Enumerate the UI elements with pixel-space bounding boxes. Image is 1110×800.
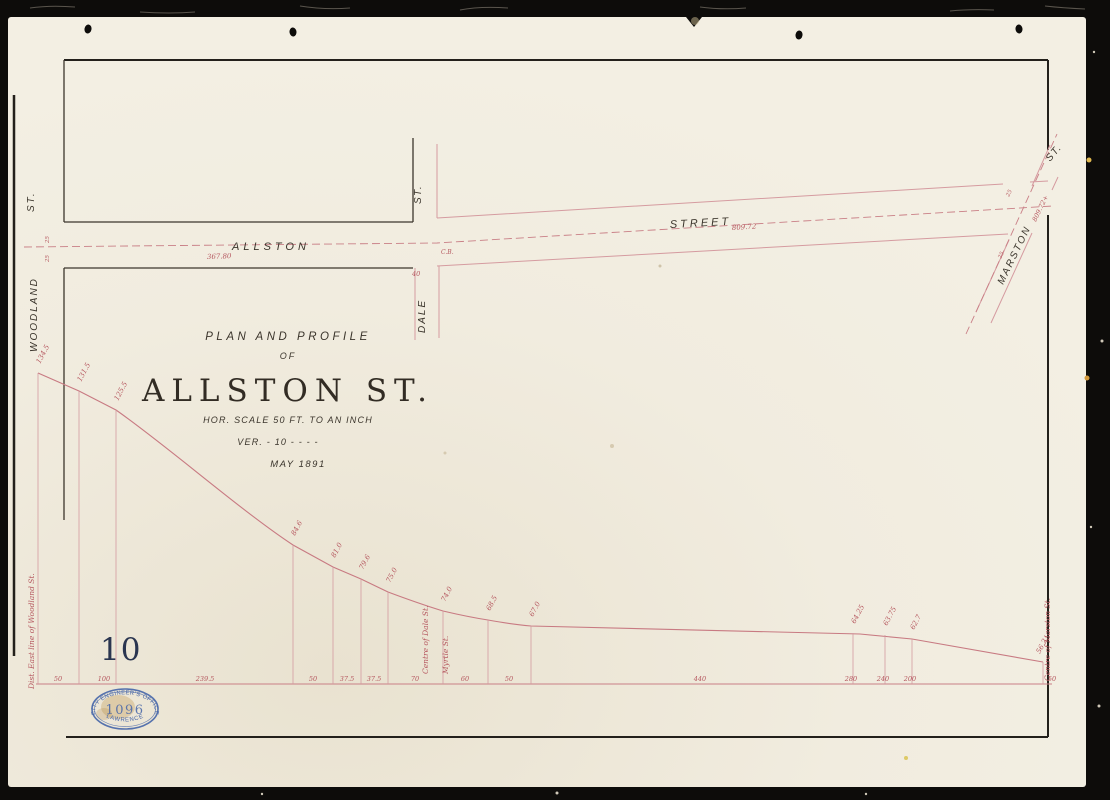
plan-profile-drawing: ST. WOODLAND ALLSTON STREET ST. DALE MAR…: [0, 0, 1110, 800]
distance-label: 50: [54, 675, 62, 683]
woodland-halfwidth-2: 25: [45, 255, 51, 263]
distance-label: 37.5: [340, 675, 354, 683]
allston-street-label: ALLSTON: [231, 241, 310, 253]
distance-label: 37.5: [367, 675, 381, 683]
stamp-number: 1096: [105, 703, 144, 718]
profile-note-woodland: Dist. East line of Woodland St.: [27, 573, 36, 690]
horizontal-scale-note: HOR. SCALE 50 FT. TO AN INCH: [203, 415, 373, 425]
dale-street-label: DALE: [417, 299, 428, 333]
scanned-plan-sheet: ST. WOODLAND ALLSTON STREET ST. DALE MAR…: [0, 0, 1110, 800]
woodland-street-label: WOODLAND: [29, 277, 40, 352]
woodland-halfwidth-1: 25: [45, 236, 51, 244]
distance-label: 60: [461, 675, 469, 683]
title-line2: OF: [280, 351, 297, 361]
profile-note-marston: Centre of Marston St.: [1043, 598, 1052, 681]
sheet-title: ALLSTON ST.: [141, 373, 434, 409]
station-east-annotation: 809.72: [732, 222, 757, 232]
vertical-scale-note: VER. - 10 - - - -: [237, 437, 318, 447]
distance-label: 280: [844, 675, 857, 683]
sheet-number: 10: [100, 632, 141, 668]
station-west-annotation: 367.80: [207, 252, 232, 261]
distance-label: 240: [876, 675, 889, 683]
distance-label: 100: [98, 675, 110, 683]
distance-label: 50: [505, 675, 513, 683]
distance-label: 239.5: [195, 675, 215, 683]
distance-label: 440: [693, 675, 706, 683]
profile-note-myrtle: Myrtle St.: [441, 636, 450, 675]
distance-label: 200: [903, 675, 916, 683]
distance-label: 70: [411, 675, 419, 683]
dale-st-suffix-label: ST.: [413, 185, 424, 204]
scan-edge-fibers: [30, 6, 1085, 13]
catch-basin-annotation: C.B.: [441, 249, 454, 256]
dale-width-annotation: 40: [411, 270, 420, 278]
title-line1: PLAN AND PROFILE: [205, 331, 371, 343]
woodland-st-suffix-label: ST.: [26, 191, 37, 212]
profile-note-dale: Centre of Dale St.: [421, 606, 430, 674]
date-note: MAY 1891: [270, 459, 325, 470]
distance-label: 50: [309, 675, 317, 683]
